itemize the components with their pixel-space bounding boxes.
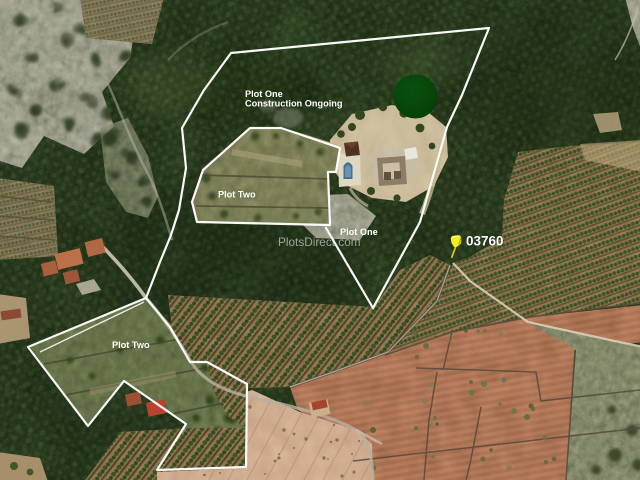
svg-text:Construction Ongoing: Construction Ongoing: [245, 99, 342, 109]
svg-text:03760: 03760: [466, 234, 504, 249]
svg-text:Plot Two: Plot Two: [218, 190, 256, 200]
svg-text:Plot One: Plot One: [245, 89, 283, 99]
svg-text:Plot Two: Plot Two: [112, 340, 150, 350]
svg-text:PlotsDirect.com: PlotsDirect.com: [278, 235, 361, 249]
